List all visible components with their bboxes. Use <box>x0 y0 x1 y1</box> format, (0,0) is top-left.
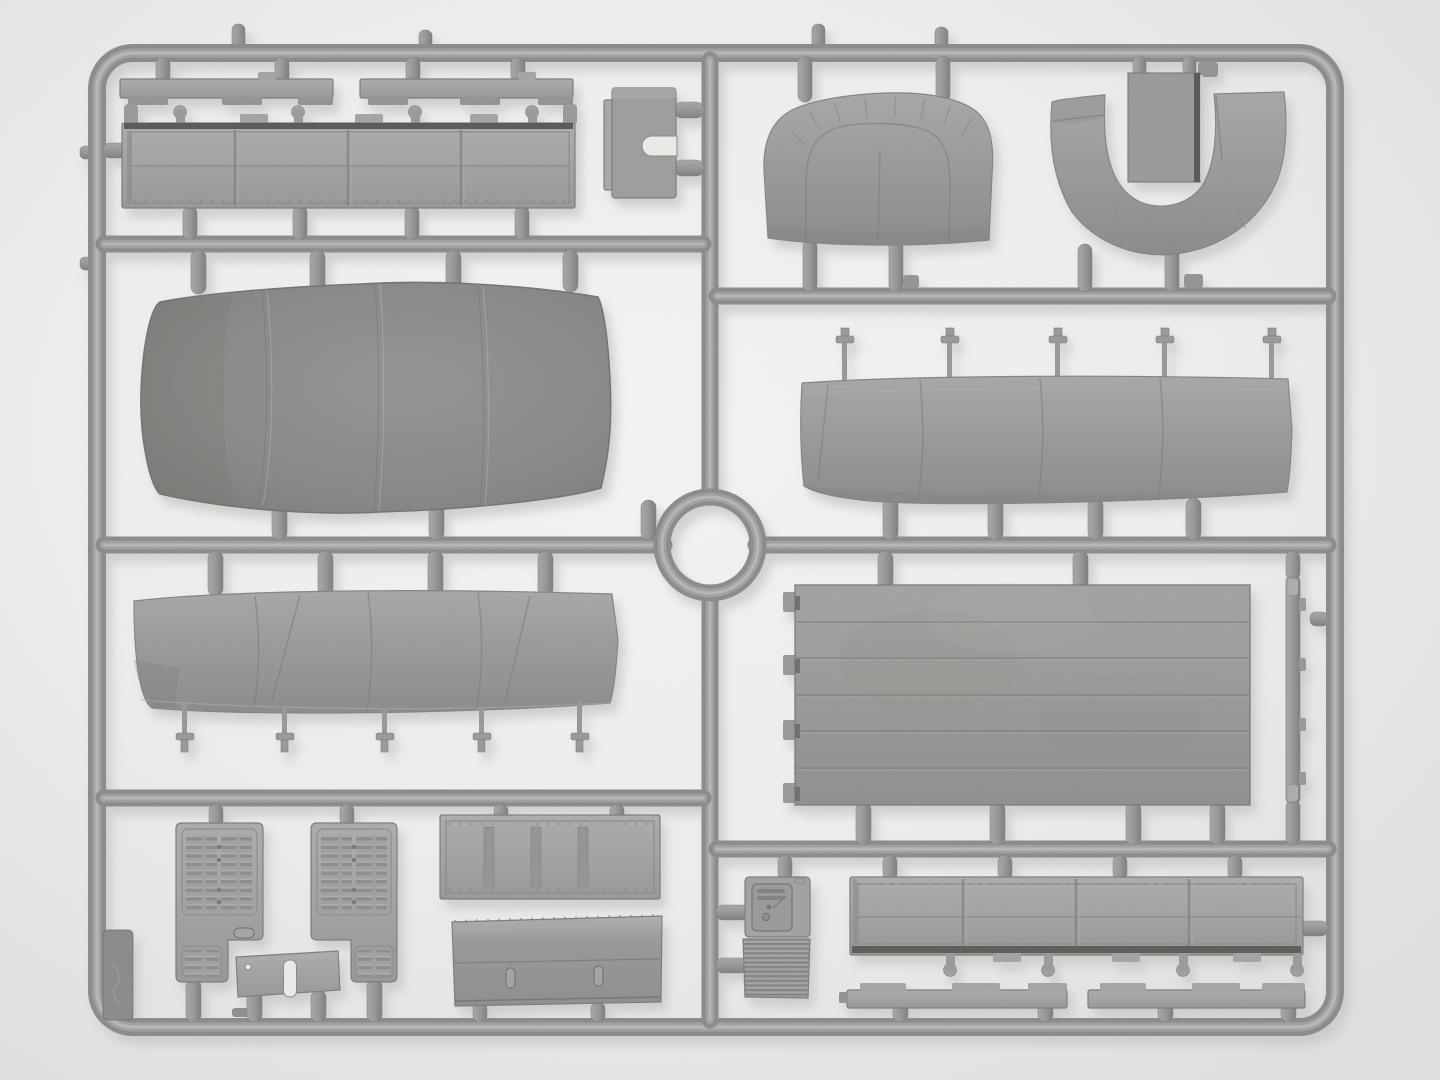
sprue-photo <box>0 0 1440 1080</box>
film-grain-overlay <box>0 0 1440 1080</box>
